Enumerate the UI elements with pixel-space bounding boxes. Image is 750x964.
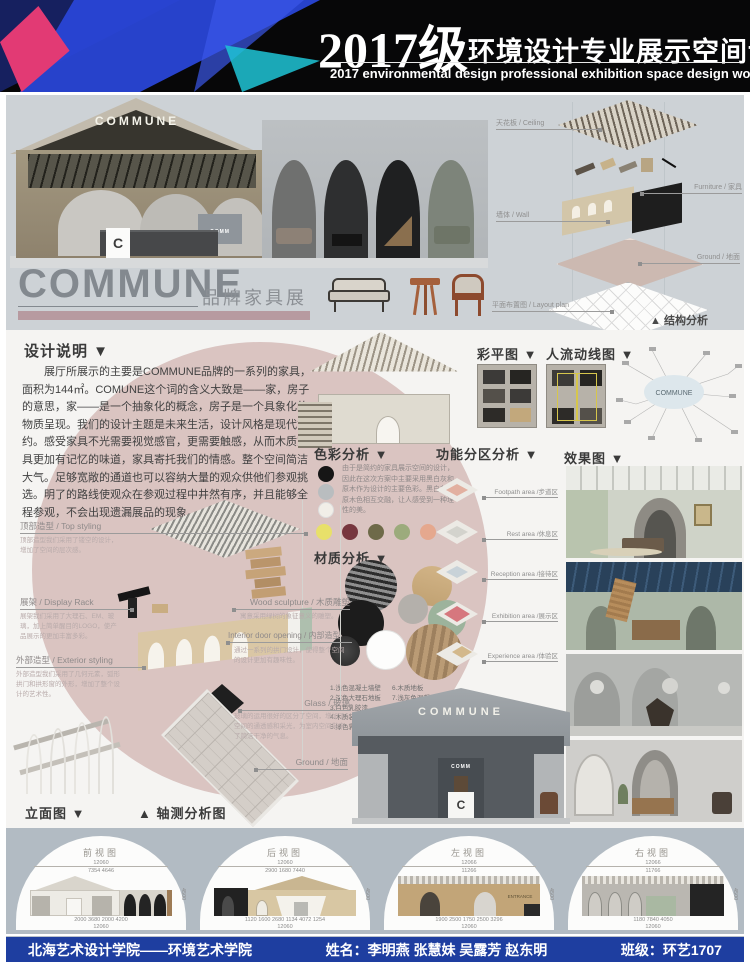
furn-arrow	[662, 158, 677, 168]
view-title: 后视图	[200, 846, 370, 859]
chair-leg	[455, 300, 458, 316]
dim-mid: 11766	[568, 868, 738, 874]
accent-dot-3	[368, 524, 384, 540]
wood-counter	[632, 620, 680, 640]
pylon-chair	[540, 792, 558, 814]
layer-ground	[556, 238, 704, 290]
pier	[32, 896, 50, 916]
zone-text: Footpath area /步道区	[494, 489, 558, 496]
plan-block	[510, 370, 532, 384]
elevation-sketch	[12, 700, 124, 796]
label-top-styling: 顶部造型 / Top styling	[20, 520, 306, 534]
label-furniture: Furniture / 家具	[642, 182, 742, 194]
hero-render: COMMUNE COMM C	[10, 98, 488, 270]
window	[294, 902, 308, 916]
niche-sign: COMM	[438, 764, 484, 770]
niche-plant	[454, 776, 468, 792]
sofa-leg	[334, 302, 336, 312]
zone-row-1: Footpath area /步道区	[436, 478, 558, 508]
rug	[590, 548, 662, 556]
table-leg	[430, 285, 437, 315]
logo-letter: C	[113, 235, 123, 251]
label-glass: Glass / 玻璃	[240, 697, 350, 711]
render-1	[566, 466, 742, 558]
dark-arch	[154, 894, 166, 916]
hero-sign: COMMUNE	[72, 114, 202, 128]
label-text: 顶部造型 / Top styling	[20, 521, 101, 531]
brand-bar	[18, 311, 310, 320]
view-title: 左视图	[384, 846, 554, 859]
arch	[690, 672, 736, 730]
dim-mid: 11266	[384, 868, 554, 874]
accent-dot-4	[394, 524, 410, 540]
render-3	[566, 654, 742, 736]
arch-open	[574, 754, 614, 816]
label-text: 墙体 / Wall	[496, 212, 529, 219]
entrance-note: ENTRANCE	[500, 894, 540, 899]
ceiling-blue	[566, 562, 742, 592]
drawing	[30, 876, 172, 916]
brand-underline	[18, 306, 198, 307]
label-text: Furniture / 家具	[694, 184, 742, 191]
dim-top: 12066	[568, 860, 738, 866]
label-wall: 墙体 / Wall	[496, 210, 608, 222]
desc-wood-sculpture: 寓意采用绿树的象征意义的雕塑。	[240, 612, 350, 622]
facade-pylon-l	[358, 754, 388, 818]
render-2	[566, 562, 742, 650]
chair-leg	[478, 300, 481, 316]
label-wood-sculpture: Wood sculpture / 木质雕塑	[234, 596, 350, 610]
arch-outline	[588, 892, 602, 916]
furn-bit	[600, 158, 616, 171]
label-ceiling: 天花板 / Ceiling	[496, 118, 600, 130]
footer-class: 班级：环艺1707	[621, 940, 722, 960]
axon-caption: ▲ 轴测分析图	[138, 803, 226, 822]
sketch-stack	[298, 402, 332, 448]
sofa-icon	[328, 276, 390, 314]
dim-side: 4500	[542, 888, 554, 900]
label-door: Interior door opening / 内部造型	[228, 630, 352, 643]
drawing	[582, 876, 724, 916]
plan-block	[483, 389, 505, 403]
color-dot-grey	[318, 484, 334, 500]
zone-text: Experience area /体验区	[488, 653, 558, 660]
view-title: 右视图	[568, 846, 738, 859]
dim-side: 4500	[174, 888, 186, 900]
chair-back	[452, 274, 484, 296]
label-text: Interior door opening / 内部造型	[228, 631, 341, 640]
label-layout-plan: 平面布置图 / Layout plan	[492, 300, 612, 312]
desc-top-styling: 顶部造型我们采用了镂空的设计，增加了空间的层次感。	[20, 536, 122, 556]
table-top	[410, 278, 440, 285]
floor	[566, 726, 742, 736]
flow-thumb	[546, 364, 606, 428]
art-frame	[694, 504, 712, 526]
label-text: Ground / 地面	[697, 254, 740, 261]
ceiling	[566, 466, 742, 490]
arch-dark	[420, 892, 440, 916]
label-text: 外部造型 / Exterior styling	[16, 655, 113, 665]
view-title: 前视图	[16, 846, 186, 859]
plan-block	[483, 370, 505, 384]
dim-line	[402, 866, 536, 867]
dim-bottom: 2000 3680 2000 4200	[16, 917, 186, 923]
color-plan-thumb	[477, 364, 537, 428]
arch-frame	[98, 716, 114, 794]
desc-exterior: 外部造型我们采用了几何元素，弧形拱门和拱形窗的外形，增加了整个设计的艺术性。	[16, 670, 122, 700]
furn-bit	[641, 158, 653, 172]
pier	[92, 896, 112, 916]
label-exterior: 外部造型 / Exterior styling	[16, 654, 144, 668]
zoning-heading: 功能分区分析 ▼	[436, 444, 538, 463]
facade-sign: COMMUNE	[396, 706, 526, 718]
mat-concrete	[398, 594, 428, 624]
zone-text: Reception area /接待区	[491, 571, 558, 578]
title-divider	[330, 62, 740, 63]
label-text: 平面布置图 / Layout plan	[492, 302, 569, 309]
colonnade	[398, 876, 540, 884]
arch-glass	[474, 892, 496, 916]
console-blob	[332, 234, 362, 246]
dim-mid: 2900 1680 7440	[200, 868, 370, 874]
mirror	[590, 680, 604, 694]
sofa-blob	[276, 228, 312, 244]
pedestal-logo: C	[457, 798, 466, 812]
dim-total: 12060	[200, 924, 370, 930]
dim-bottom: 1120 1600 2680 1134 4072 1254	[200, 917, 370, 923]
dim-line	[218, 866, 352, 867]
arch-outline	[608, 892, 622, 916]
sketch-roof	[310, 332, 458, 400]
rack-block	[152, 604, 168, 613]
dark-arch	[124, 894, 136, 916]
label-display-rack: 展架 / Display Rack	[20, 596, 132, 610]
arch-small	[256, 900, 268, 916]
layer-furniture	[575, 156, 685, 182]
dim-bottom: 1180 7840 4050	[568, 917, 738, 923]
desc-door: 通过一系列的拱门设计，使得整个空间的设计更加有趣味性。	[234, 646, 348, 666]
label-ground: Ground / 地面	[640, 252, 740, 264]
furn-bit	[575, 162, 596, 175]
dim-side: 4500	[358, 888, 370, 900]
furn-bit	[619, 161, 638, 173]
color-dot-black	[318, 466, 334, 482]
mat-white	[366, 630, 406, 670]
dark-arch	[139, 894, 151, 916]
dim-total: 12060	[384, 924, 554, 930]
dim-top: 12060	[200, 860, 370, 866]
arch-outline	[628, 892, 642, 916]
door	[66, 898, 82, 916]
dim-top: 12066	[384, 860, 554, 866]
arcade-cut	[148, 641, 164, 669]
dark-base	[524, 904, 540, 916]
title-en: 2017 environmental design professional e…	[330, 66, 742, 81]
label-text: 天花板 / Ceiling	[496, 120, 544, 127]
dim-total: 12060	[568, 924, 738, 930]
zone-label: Rest area /休息区	[484, 528, 558, 540]
sofa-leg	[382, 302, 384, 312]
elevation-panel-right: 右视图 12066 11766 1180 7840 4050 12060 450…	[568, 836, 738, 930]
dim-line	[34, 866, 168, 867]
plan-block	[483, 408, 505, 422]
footer-names: 姓名：李明燕 张慧妹 吴露芳 赵东明	[326, 940, 548, 960]
black-box	[690, 884, 724, 916]
render-4	[566, 740, 742, 822]
green-doors	[646, 896, 676, 916]
plant	[618, 784, 628, 804]
sketch-door	[376, 416, 400, 444]
color-dot-white	[318, 502, 334, 518]
ceiling-truss	[28, 154, 256, 188]
header-banner: 2017级环境设计专业展示空间设计作品展 2017 environmental …	[0, 0, 750, 92]
color-plan-heading: 彩平图 ▼	[477, 344, 537, 363]
niche-pedestal: C	[448, 792, 474, 818]
zone-label: Exhibition area /展示区	[484, 610, 558, 622]
zone-label: Reception area /接待区	[484, 568, 558, 580]
mirror	[662, 678, 678, 694]
zone-row-3: Reception area /接待区	[436, 560, 558, 590]
zone-label: Footpath area /步道区	[484, 486, 558, 498]
zone-row-4: Exhibition area /展示区	[436, 602, 558, 632]
color-analysis-heading: 色彩分析 ▼	[314, 444, 388, 463]
structure-caption: ▲ 结构分析	[650, 312, 708, 328]
arch-frame	[74, 722, 90, 794]
label-text: Ground / 地面	[296, 757, 348, 767]
zone-row-5: Experience area /体验区	[436, 642, 558, 672]
dim-side: 4500	[726, 888, 738, 900]
building-sketch	[298, 332, 468, 450]
chair-dark	[712, 792, 732, 814]
side-table-icon	[410, 278, 440, 316]
deco-triangle-cyan	[225, 40, 320, 92]
zone-text: Exhibition area /展示区	[492, 613, 558, 620]
zone-row-2: Rest area /休息区	[436, 520, 558, 550]
accent-dot-2	[342, 524, 358, 540]
elevation-panel-left: 左视图 12066 11266 ENTRANCE 1900 2500 1750 …	[384, 836, 554, 930]
plan-block	[510, 389, 532, 403]
logo-box: C	[106, 228, 130, 258]
accent-dot-1	[316, 524, 332, 540]
zone-text: Rest area /休息区	[507, 531, 558, 538]
dim-mid: 7354 4646	[16, 868, 186, 874]
arcade-cut	[204, 635, 220, 663]
label-text: Wood sculpture / 木质雕塑	[250, 597, 350, 607]
label-text: Glass / 玻璃	[304, 698, 350, 708]
wood-pier	[167, 890, 172, 916]
elevation-panel-front: 前视图 12060 7354 4646 2000 3680 2000 4200 …	[16, 836, 186, 930]
label-text: 展架 / Display Rack	[20, 597, 94, 607]
drawing	[214, 876, 356, 916]
elevation-caption: 立面图 ▼	[25, 803, 85, 822]
table-leg	[413, 285, 420, 315]
mindmap-center-label: COMMUNE	[656, 390, 693, 397]
colonnade	[582, 876, 724, 884]
console	[632, 798, 674, 814]
plan-block	[510, 408, 532, 422]
mindmap: COMMUNE	[608, 342, 744, 454]
wall-green	[566, 490, 608, 558]
desc-glass: 玻璃的运用很好的区分了空间，增加了空间的通透感和采光，为室内空间带来了简洁干净的…	[234, 712, 350, 742]
accent-dot-5	[420, 524, 436, 540]
footer-school: 北海艺术设计学院——环境艺术学院	[28, 940, 252, 960]
sofa-seat	[328, 290, 390, 302]
arch	[686, 606, 716, 650]
chair-blob	[434, 226, 470, 244]
arch-frame	[50, 728, 66, 794]
exhibition-poster: 2017级环境设计专业展示空间设计作品展 2017 environmental …	[0, 0, 750, 964]
elevation-panel-rear: 后视图 12060 2900 1680 7440 1120 1600 2680 …	[200, 836, 370, 930]
design-note-body: 展厅所展示的主要是COMMUNE品牌的一系列的家具，面积为144㎡。COMUNE…	[22, 364, 314, 522]
label-axon-ground: Ground / 地面	[256, 756, 348, 770]
footer-bar: 北海艺术设计学院——环境艺术学院 姓名：李明燕 张慧妹 吴露芳 赵东明 班级：环…	[6, 936, 744, 962]
flow-route	[576, 373, 578, 421]
dim-line	[586, 866, 720, 867]
arch-small	[222, 896, 234, 916]
dim-total: 12060	[16, 924, 186, 930]
zone-label: Experience area /体验区	[484, 650, 558, 662]
dim-top: 12060	[16, 860, 186, 866]
design-note-heading: 设计说明 ▼	[24, 340, 109, 361]
desc-display-rack: 展架我们采用了大理石、EM、玻璃，加上简单醒目的LOGO，使产品展示的更加丰富多…	[20, 612, 122, 642]
chair-icon	[452, 274, 484, 316]
facade-ground	[352, 818, 570, 824]
renders-heading: 效果图 ▼	[564, 448, 624, 467]
arcade-cut	[176, 638, 192, 666]
facade-render: COMMUNE COMM C	[352, 688, 570, 824]
mirror	[718, 682, 730, 694]
table-leg	[424, 285, 427, 315]
dim-bottom: 1900 2500 1750 2500 3296	[384, 917, 554, 923]
brand-tag: 品牌家具展	[202, 284, 307, 310]
drawing: ENTRANCE	[398, 876, 540, 916]
